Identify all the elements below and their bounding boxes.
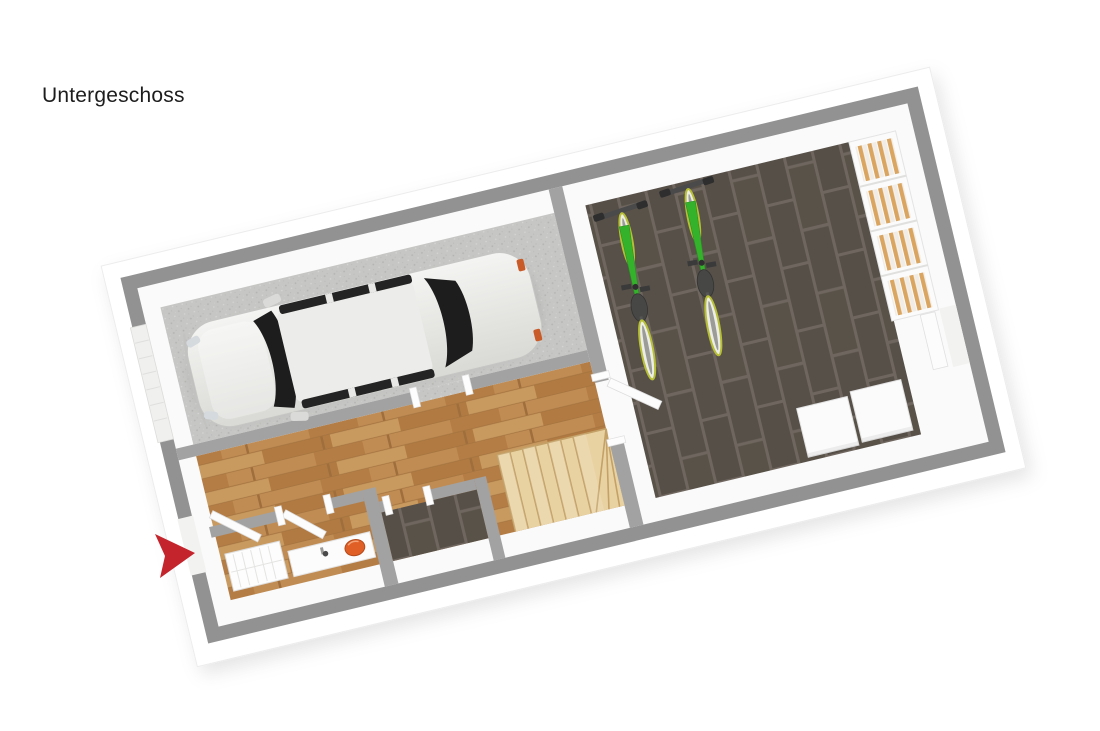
floorplan-page: Untergeschoss	[0, 0, 1100, 731]
floorplan	[0, 0, 1100, 731]
car-mirror	[291, 412, 309, 421]
building	[101, 67, 1026, 667]
car-headlight	[204, 411, 219, 420]
